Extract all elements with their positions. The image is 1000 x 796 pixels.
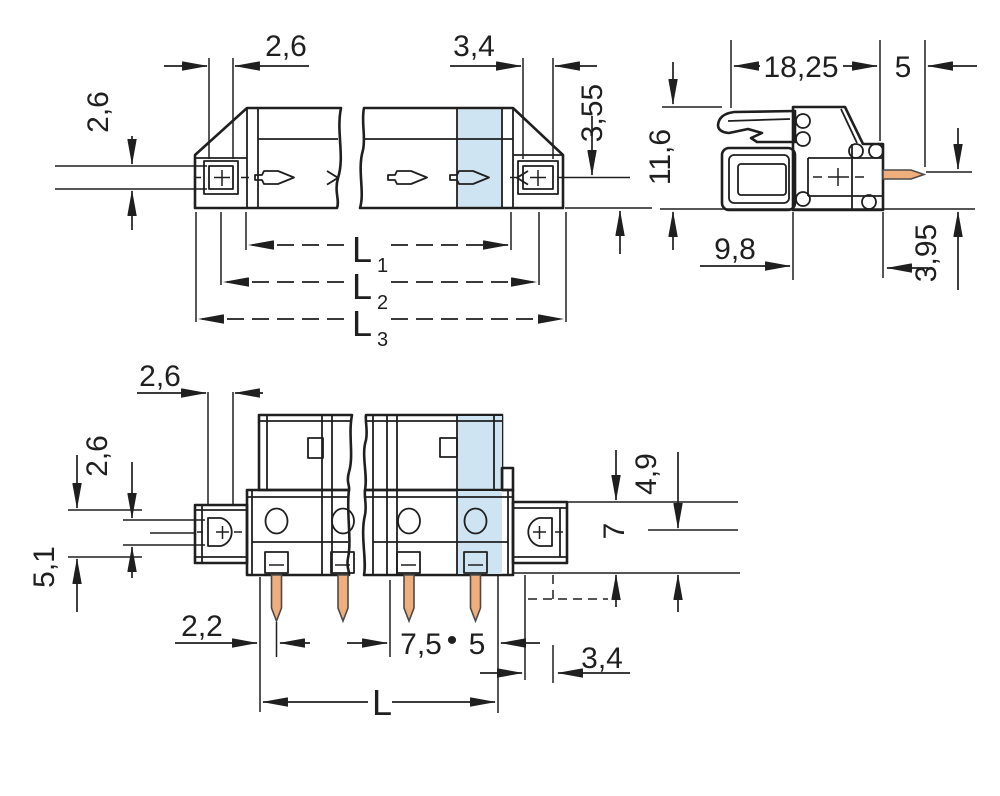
dim-label-pitch-b: 5 bbox=[469, 628, 486, 661]
dim-label: 2,6 bbox=[81, 435, 114, 477]
profile-center-cross bbox=[813, 168, 864, 186]
side-view: 2,6 3,4 2,6 3,55 L 1 L 2 bbox=[55, 30, 652, 351]
solder-pin-4 bbox=[471, 575, 481, 621]
front-step bbox=[502, 468, 513, 490]
solder-pin-side bbox=[883, 170, 924, 179]
dim-front-overall-length: L bbox=[263, 682, 495, 723]
dim-label: L bbox=[352, 303, 372, 344]
dim-front-pitch: 7,5 • 5 bbox=[280, 624, 540, 661]
dim-label-pitch-dot: • bbox=[447, 624, 458, 657]
solder-pin-1 bbox=[272, 575, 282, 621]
front-view: 2,6 2,6 5,1 2,2 7,5 • 5 3,4 bbox=[28, 360, 740, 723]
dim-label-pitch-a: 7,5 bbox=[400, 628, 442, 661]
side-highlight-pole bbox=[457, 110, 502, 207]
dim-front-flange-height: 7 bbox=[598, 450, 631, 607]
dim-label: 7 bbox=[598, 523, 631, 540]
profile-view: 18,25 5 11,6 9,8 3,95 bbox=[644, 40, 977, 290]
dim-profile-lower-depth: 9,8 bbox=[700, 233, 790, 266]
dim-side-pin-axis-bottom: 3,55 bbox=[576, 84, 620, 254]
dim-label-sub: 2 bbox=[377, 292, 388, 314]
front-left-flange-detail bbox=[150, 505, 247, 563]
contact-blade-2 bbox=[388, 171, 427, 184]
dim-label: L bbox=[352, 229, 372, 270]
dim-label: 5 bbox=[895, 51, 912, 84]
dim-label-sub: 1 bbox=[377, 255, 388, 277]
dim-label: L bbox=[372, 682, 392, 723]
dim-label: L bbox=[352, 266, 372, 307]
contact-blade-1 bbox=[255, 171, 294, 184]
front-right-flange-detail bbox=[513, 508, 608, 603]
dim-front-flange-zone: 5,1 bbox=[28, 455, 77, 612]
dim-side-flange-width-left: 2,6 bbox=[164, 30, 309, 66]
solder-pin-2 bbox=[338, 575, 348, 621]
dim-label: 3,95 bbox=[910, 224, 943, 282]
dim-label: 3,4 bbox=[581, 642, 623, 675]
dim-label: 2,6 bbox=[82, 91, 115, 133]
dim-label: 9,8 bbox=[714, 233, 756, 266]
dim-front-edge-offset: 2,2 bbox=[175, 610, 257, 643]
dim-label: 2,6 bbox=[139, 360, 181, 393]
profile-lower-block bbox=[722, 148, 795, 210]
solder-pin-3 bbox=[404, 575, 414, 621]
dim-profile-height: 11,6 bbox=[644, 62, 677, 250]
dim-label: 2,6 bbox=[265, 30, 307, 63]
dim-label: 11,6 bbox=[644, 129, 677, 185]
dim-front-hole-width: 2,6 bbox=[137, 360, 263, 393]
dim-label: 18,25 bbox=[763, 51, 838, 84]
front-upper-left bbox=[259, 415, 352, 490]
connector-dimension-drawing: 2,6 3,4 2,6 3,55 L 1 L 2 bbox=[0, 0, 1000, 796]
dim-label: 4,9 bbox=[630, 453, 663, 495]
profile-locking-lever bbox=[718, 111, 795, 142]
dim-L1: L 1 bbox=[249, 229, 508, 277]
dim-profile-pin-length: 5 bbox=[895, 51, 977, 84]
dim-label: 3,4 bbox=[453, 30, 495, 63]
dim-label: 5,1 bbox=[28, 546, 61, 588]
technical-drawing-canvas: 2,6 3,4 2,6 3,55 L 1 L 2 bbox=[0, 0, 1000, 796]
dim-profile-depth: 18,25 bbox=[734, 51, 877, 84]
dim-front-side-gap: 3,4 bbox=[480, 642, 630, 675]
dim-front-pin-offset: 4,9 bbox=[630, 452, 678, 612]
dim-label: 3,55 bbox=[576, 84, 609, 142]
dim-label: 2,2 bbox=[181, 610, 223, 643]
front-band-left bbox=[247, 490, 349, 575]
dim-label-sub: 3 bbox=[377, 329, 388, 351]
front-highlight-upper bbox=[457, 416, 502, 490]
dim-side-contact-height: 2,6 bbox=[82, 91, 132, 230]
